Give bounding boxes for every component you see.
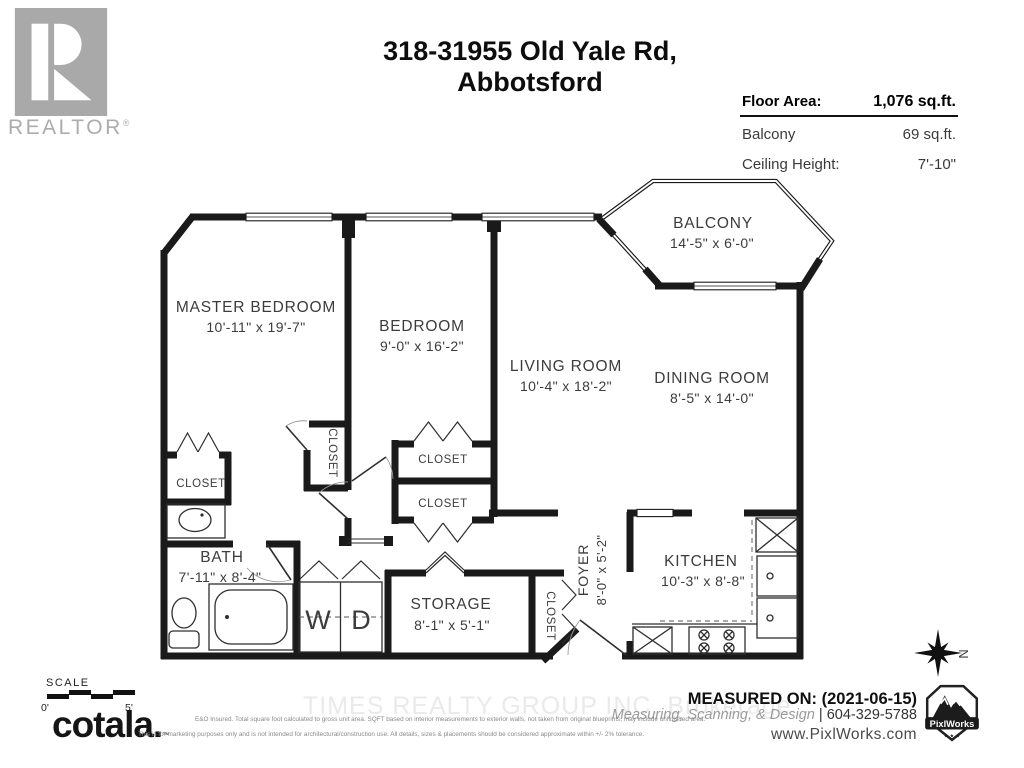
- room-labels: MASTER BEDROOM 10'-11" x 19'-7" BEDROOM …: [176, 215, 770, 641]
- room-label-storage: STORAGE: [410, 596, 491, 613]
- room-dims-bedroom: 9'-0" x 16'-2": [380, 338, 464, 354]
- pixlworks-label: PixlWorks: [930, 719, 975, 729]
- room-label-dining-room: DINING ROOM: [654, 370, 770, 387]
- room-dims-master-bedroom: 10'-11" x 19'-7": [206, 319, 305, 335]
- fridge-icon: [757, 556, 798, 596]
- room-dims-storage: 8'-1" x 5'-1": [414, 617, 490, 633]
- room-label-master-bedroom: MASTER BEDROOM: [176, 299, 336, 316]
- website-url: www.PixlWorks.com: [771, 726, 917, 744]
- scale-start: 0': [41, 702, 49, 714]
- disclaimer-line2: This is for marketing purposes only and …: [138, 731, 644, 738]
- balcony-railing: [600, 181, 832, 287]
- pixlworks-badge: PixlWorks ★ ★ ★: [921, 683, 983, 743]
- phone-number: 604-329-5788: [827, 707, 917, 723]
- dryer-label: D: [351, 605, 371, 635]
- badge-stars: ★ ★ ★: [944, 733, 961, 739]
- scale-label: SCALE: [46, 677, 90, 689]
- room-dims-living-room: 10'-4" x 18'-2": [520, 378, 612, 394]
- room-dims-dining-room: 8'-5" x 14'-0": [670, 390, 754, 406]
- disclaimer-line1: E&O Insured. Total square foot calculate…: [195, 716, 705, 723]
- wall-layer: [161, 214, 820, 661]
- scale-bar: [47, 690, 137, 700]
- closet-label-master: CLOSET: [176, 478, 226, 490]
- room-dims-foyer: 8'-0" x 5'-2": [594, 535, 609, 606]
- appliance-icon: [757, 598, 798, 638]
- room-label-foyer: FOYER: [575, 544, 591, 596]
- closet-label-hall: CLOSET: [418, 498, 468, 510]
- room-label-bedroom: BEDROOM: [379, 318, 465, 335]
- north-label: N: [956, 649, 971, 658]
- room-dims-kitchen: 10'-3" x 8'-8": [661, 573, 745, 589]
- room-dims-bath: 7'-11" x 8'-4": [179, 569, 262, 585]
- sliding-door-icon: [339, 536, 393, 546]
- compass-icon: N: [914, 629, 971, 677]
- room-label-living-room: LIVING ROOM: [510, 358, 622, 375]
- room-dims-balcony: 14'-5" x 6'-0": [670, 235, 754, 251]
- cotala-logo: cotala.™: [52, 704, 168, 746]
- room-label-balcony: BALCONY: [673, 215, 753, 232]
- room-label-bath: BATH: [200, 549, 243, 566]
- washer-dryer-icons: W D: [299, 582, 382, 652]
- floorplan-svg: W D MASTER BEDROOM: [0, 0, 1024, 768]
- bathtub-icon: [209, 584, 293, 650]
- cotala-text: cotala.: [52, 704, 162, 745]
- closet-label-foyer: CLOSET: [544, 591, 556, 641]
- washer-label: W: [305, 605, 331, 635]
- toilet-icon: [172, 598, 196, 628]
- room-label-kitchen: KITCHEN: [664, 553, 738, 570]
- stove-icon: [689, 627, 745, 654]
- closet-door-icons: [177, 422, 576, 644]
- sink-icon: [179, 509, 211, 532]
- closet-label-walkin: CLOSET: [326, 428, 338, 478]
- services-separator: |: [815, 707, 827, 723]
- closet-label-bedroom: CLOSET: [418, 454, 468, 466]
- floorplan-page: REALTOR® 318-31955 Old Yale Rd, Abbotsfo…: [0, 0, 1024, 768]
